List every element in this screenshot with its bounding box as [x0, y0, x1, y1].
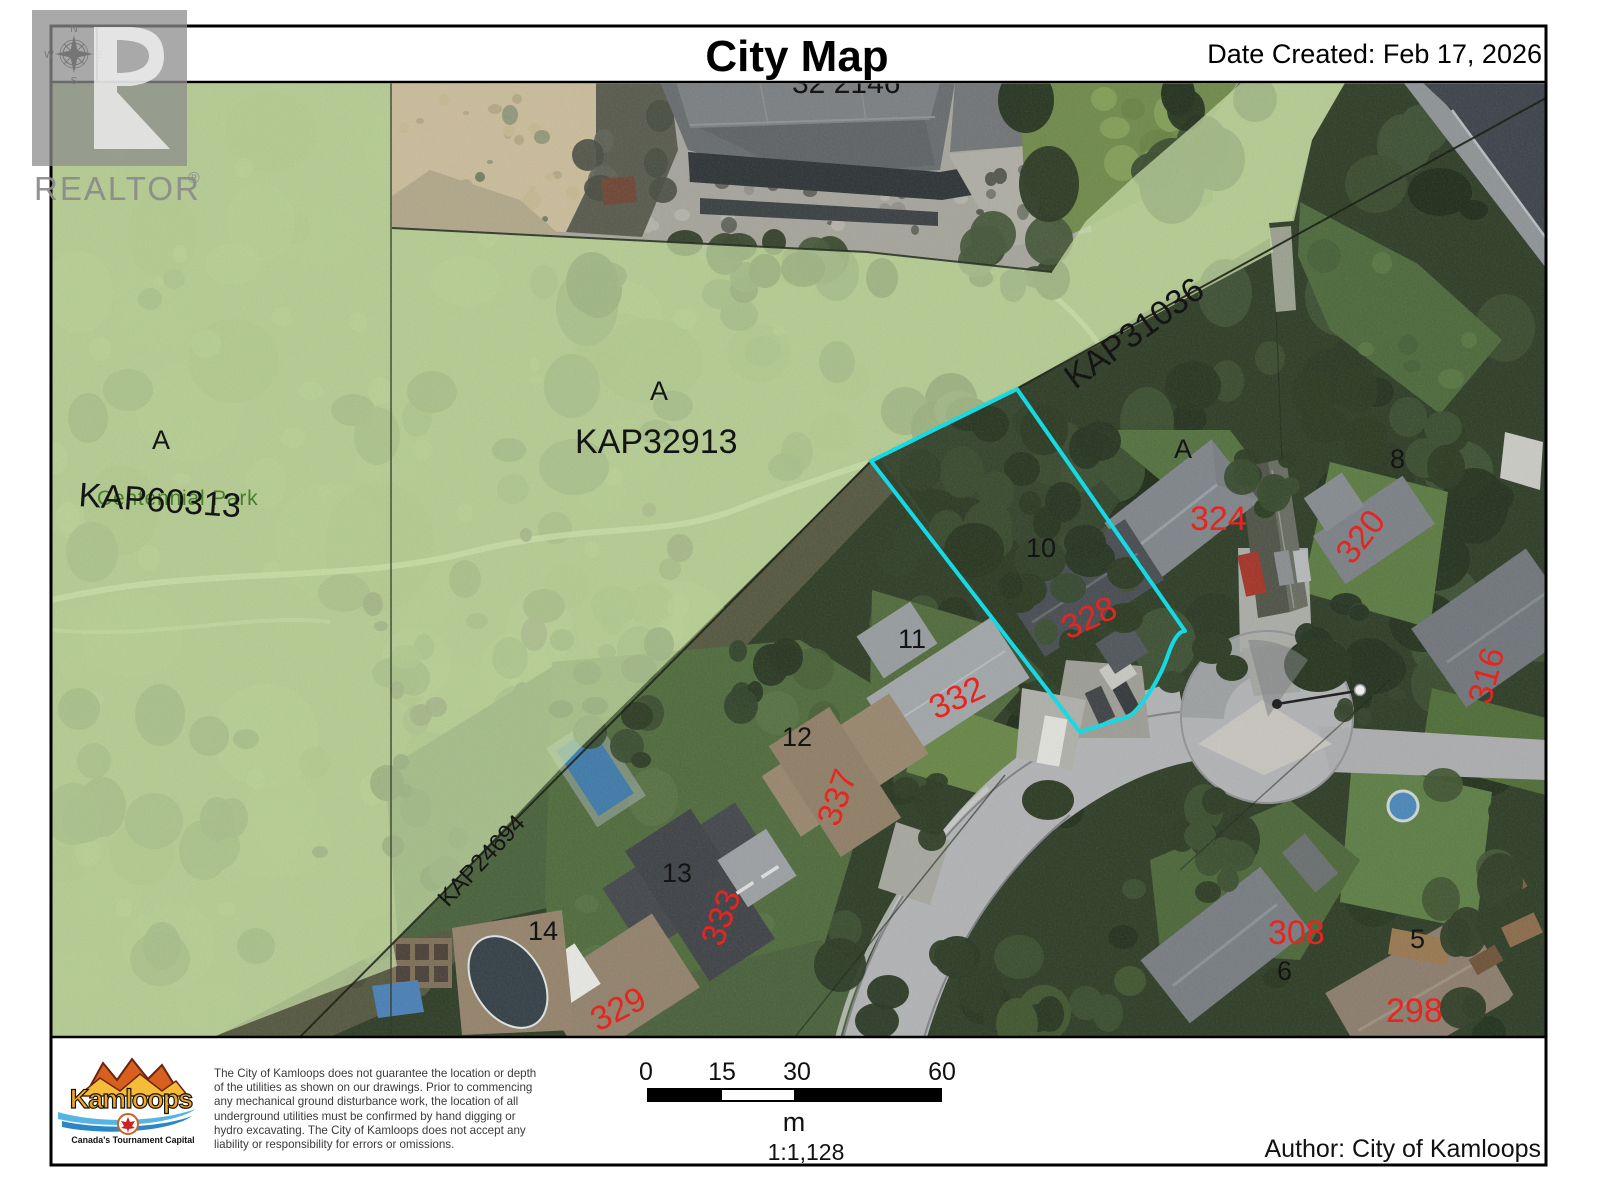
- svg-text:The City of Kamloops does not: The City of Kamloops does not guarantee …: [214, 1067, 536, 1080]
- svg-text:0: 0: [639, 1058, 653, 1086]
- svg-text:60: 60: [928, 1058, 956, 1086]
- svg-text:of the utilities as shown on o: of the utilities as shown on our drawing…: [214, 1081, 532, 1094]
- svg-text:City Map: City Map: [705, 32, 888, 81]
- svg-text:liability or responsibility fo: liability or responsibility for errors o…: [214, 1138, 454, 1151]
- svg-text:underground utilities must be: underground utilities must be confirmed …: [214, 1110, 516, 1123]
- svg-text:Date Created: Feb 17, 2026: Date Created: Feb 17, 2026: [1207, 39, 1542, 69]
- svg-text:Kamloops: Kamloops: [70, 1084, 193, 1114]
- svg-text:Author: City of Kamloops: Author: City of Kamloops: [1264, 1135, 1541, 1163]
- svg-text:30: 30: [783, 1058, 811, 1086]
- svg-text:1:1,128: 1:1,128: [768, 1139, 845, 1165]
- svg-text:Canada's Tournament Capital: Canada's Tournament Capital: [71, 1135, 194, 1145]
- svg-text:hydro excavating. The City of: hydro excavating. The City of Kamloops d…: [214, 1124, 526, 1137]
- svg-text:m: m: [783, 1107, 806, 1137]
- svg-text:15: 15: [708, 1058, 736, 1086]
- svg-text:®: ®: [188, 170, 200, 187]
- svg-text:any mechanical ground disturba: any mechanical ground disturbance work, …: [214, 1095, 518, 1108]
- svg-text:REALTOR: REALTOR: [34, 170, 201, 207]
